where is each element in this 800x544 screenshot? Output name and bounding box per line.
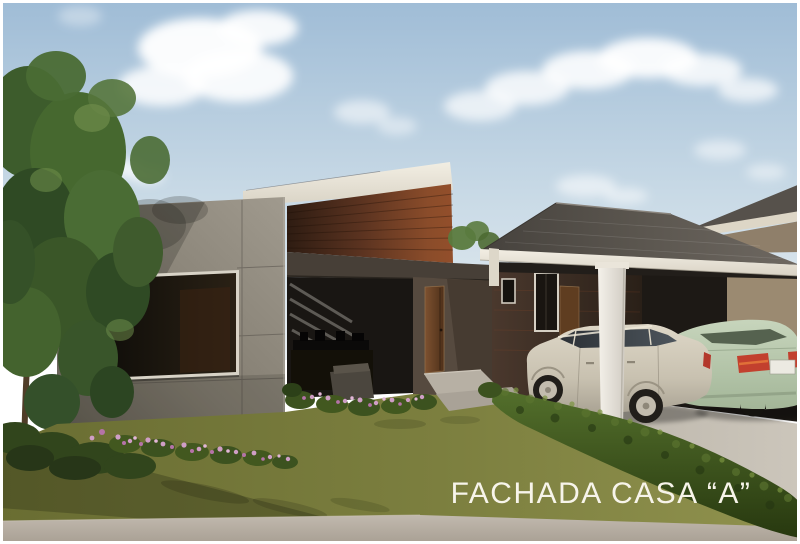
caption: FACHADA CASA “A” [451,477,752,510]
fascia-corner-trim [489,248,499,286]
wagon-door-handle [586,362,594,364]
sedan-license-plate [770,360,795,374]
covered-patio [287,277,413,401]
hedge-start-shrub [478,382,502,398]
window-reflection [180,287,230,373]
wing-window-small [502,279,515,303]
facade-rendering: FACHADA CASA “A” [0,0,800,544]
column-capital [595,262,629,269]
door-handle [440,329,443,332]
rendering-stage: FACHADA CASA “A” [0,0,800,544]
shrub-corner [282,383,302,397]
wagon-taillight [703,352,711,369]
